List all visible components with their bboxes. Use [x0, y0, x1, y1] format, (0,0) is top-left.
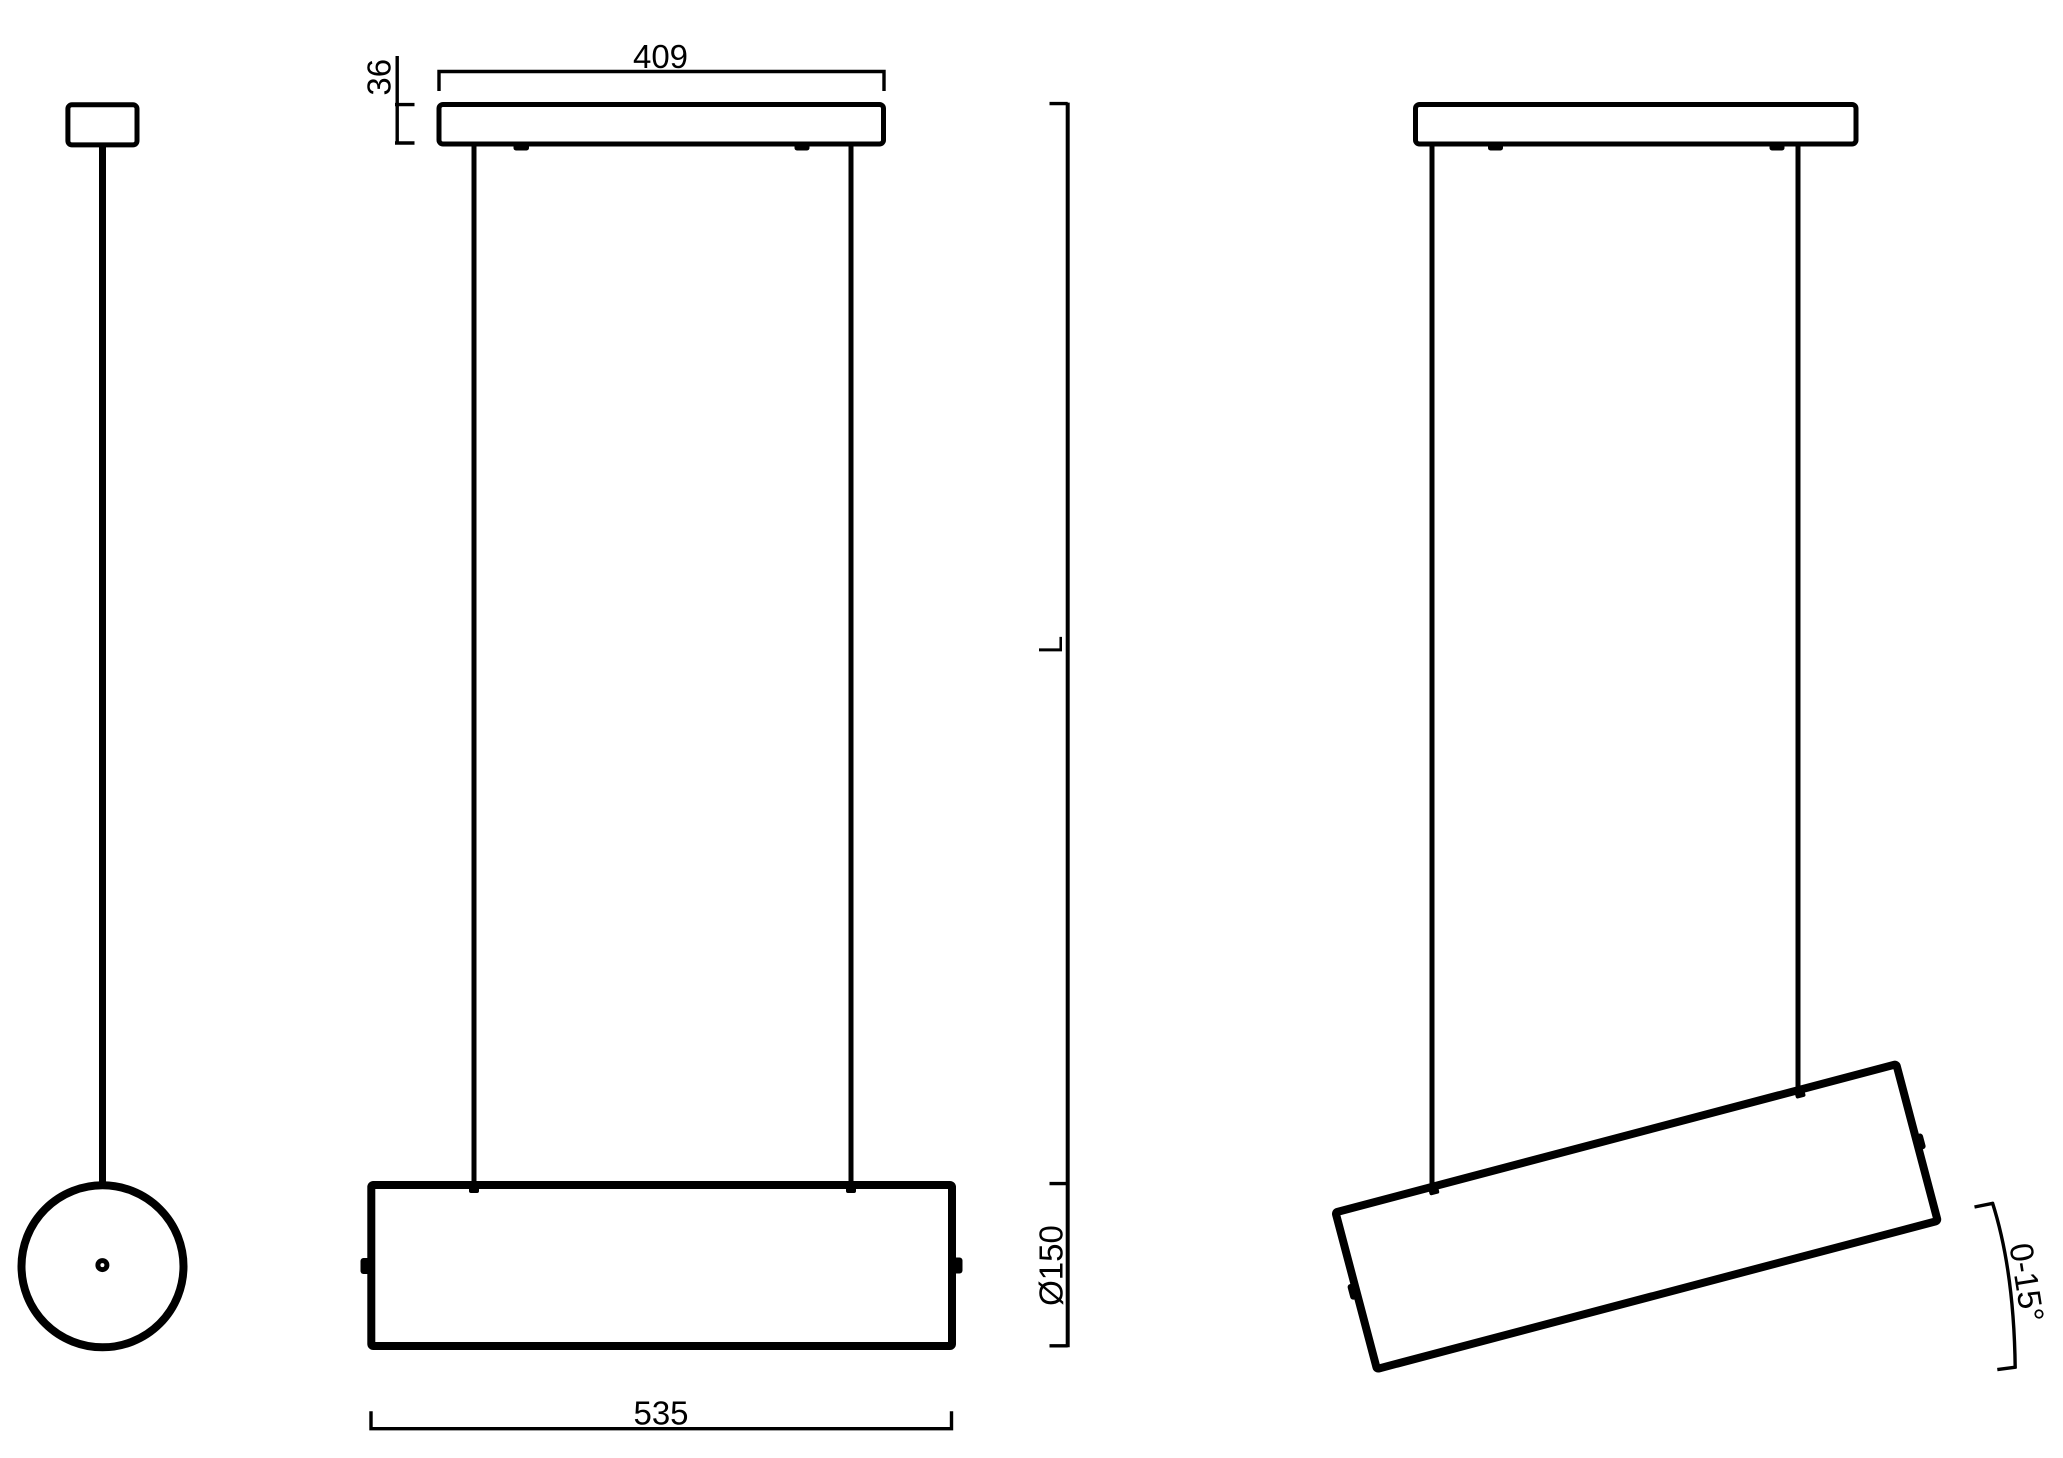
svg-text:L: L	[1032, 636, 1069, 654]
svg-text:Ø150: Ø150	[1033, 1225, 1070, 1306]
svg-text:36: 36	[361, 59, 398, 96]
svg-text:409: 409	[633, 38, 688, 75]
svg-text:535: 535	[633, 1395, 688, 1432]
